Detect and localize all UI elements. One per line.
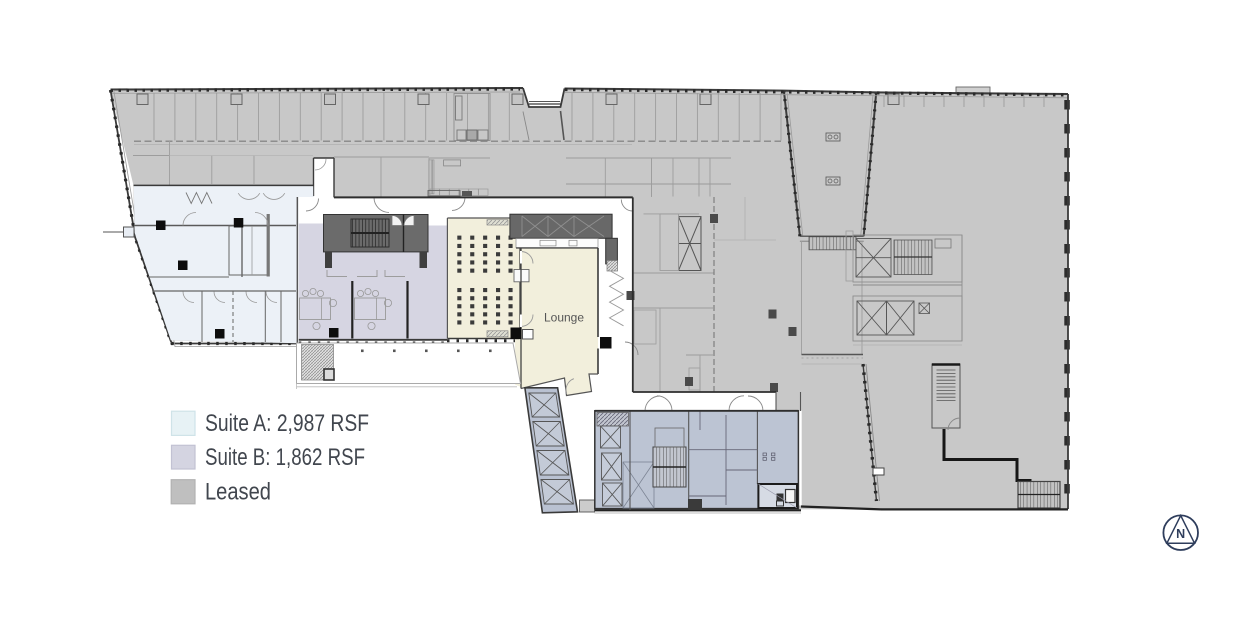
svg-text:N: N — [1176, 527, 1185, 541]
svg-text:Suite A: 2,987 RSF: Suite A: 2,987 RSF — [205, 410, 369, 437]
svg-text:Suite B: 1,862 RSF: Suite B: 1,862 RSF — [205, 444, 365, 471]
svg-text:Leased: Leased — [205, 479, 271, 506]
svg-text:Lounge: Lounge — [544, 313, 584, 325]
